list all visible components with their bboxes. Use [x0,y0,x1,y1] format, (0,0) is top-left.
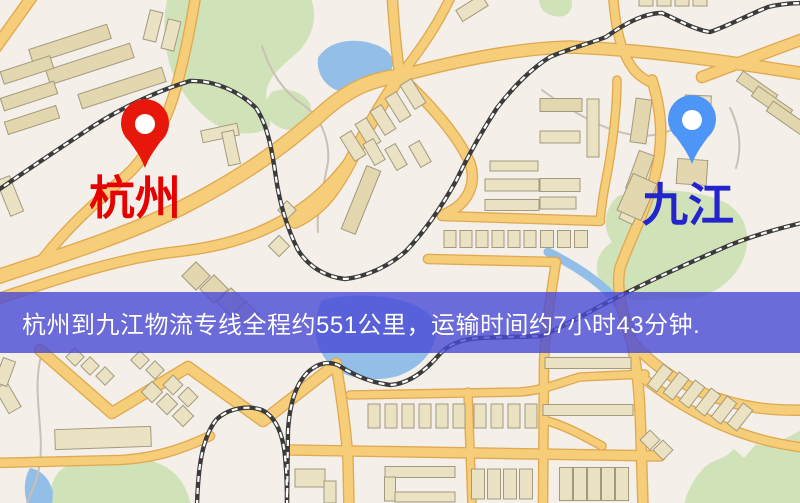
building [324,481,336,503]
building [616,468,629,501]
route-summary-text: 杭州到九江物流专线全程约551公里，运输时间约7小时43分钟. [22,305,700,340]
building [520,469,533,499]
building [540,179,580,192]
building [504,469,517,499]
building [295,469,325,487]
building [444,231,456,248]
hangzhou-pin-hole [135,114,155,134]
building [525,404,537,428]
building [541,231,554,248]
building [460,231,472,248]
building [490,161,538,171]
building [508,404,520,428]
building [540,131,580,143]
building [558,231,571,248]
map-svg[interactable]: 杭州九江 [0,0,800,503]
building [602,468,615,501]
jiujiang-pin-hole [682,110,702,130]
building [491,404,503,428]
building [492,231,504,248]
building [402,404,414,428]
building [639,0,653,6]
building [588,468,601,501]
building [485,179,539,191]
road [442,216,600,221]
building [476,231,488,248]
building [474,404,486,428]
building [368,404,380,428]
building [488,469,501,499]
building [543,405,633,416]
building [385,404,397,428]
building [485,200,539,211]
building [545,358,631,369]
building [472,469,485,499]
building [587,99,599,157]
building [453,404,465,428]
building [540,197,576,209]
building [574,468,587,501]
hangzhou-label: 杭州 [89,173,181,224]
building [385,477,396,501]
building [675,0,689,6]
building [508,231,520,248]
building [55,426,152,449]
building [419,404,431,428]
building [540,99,582,112]
building [575,231,588,248]
map-canvas[interactable]: 杭州九江 杭州到九江物流专线全程约551公里，运输时间约7小时43分钟. [0,0,800,503]
building [657,0,671,6]
info-banner: 杭州到九江物流专线全程约551公里，运输时间约7小时43分钟. [0,292,800,353]
building [436,404,448,428]
building [385,467,455,478]
building [524,231,536,248]
building [395,492,455,502]
building [560,468,573,501]
jiujiang-label: 九江 [642,180,734,231]
building [693,0,707,6]
